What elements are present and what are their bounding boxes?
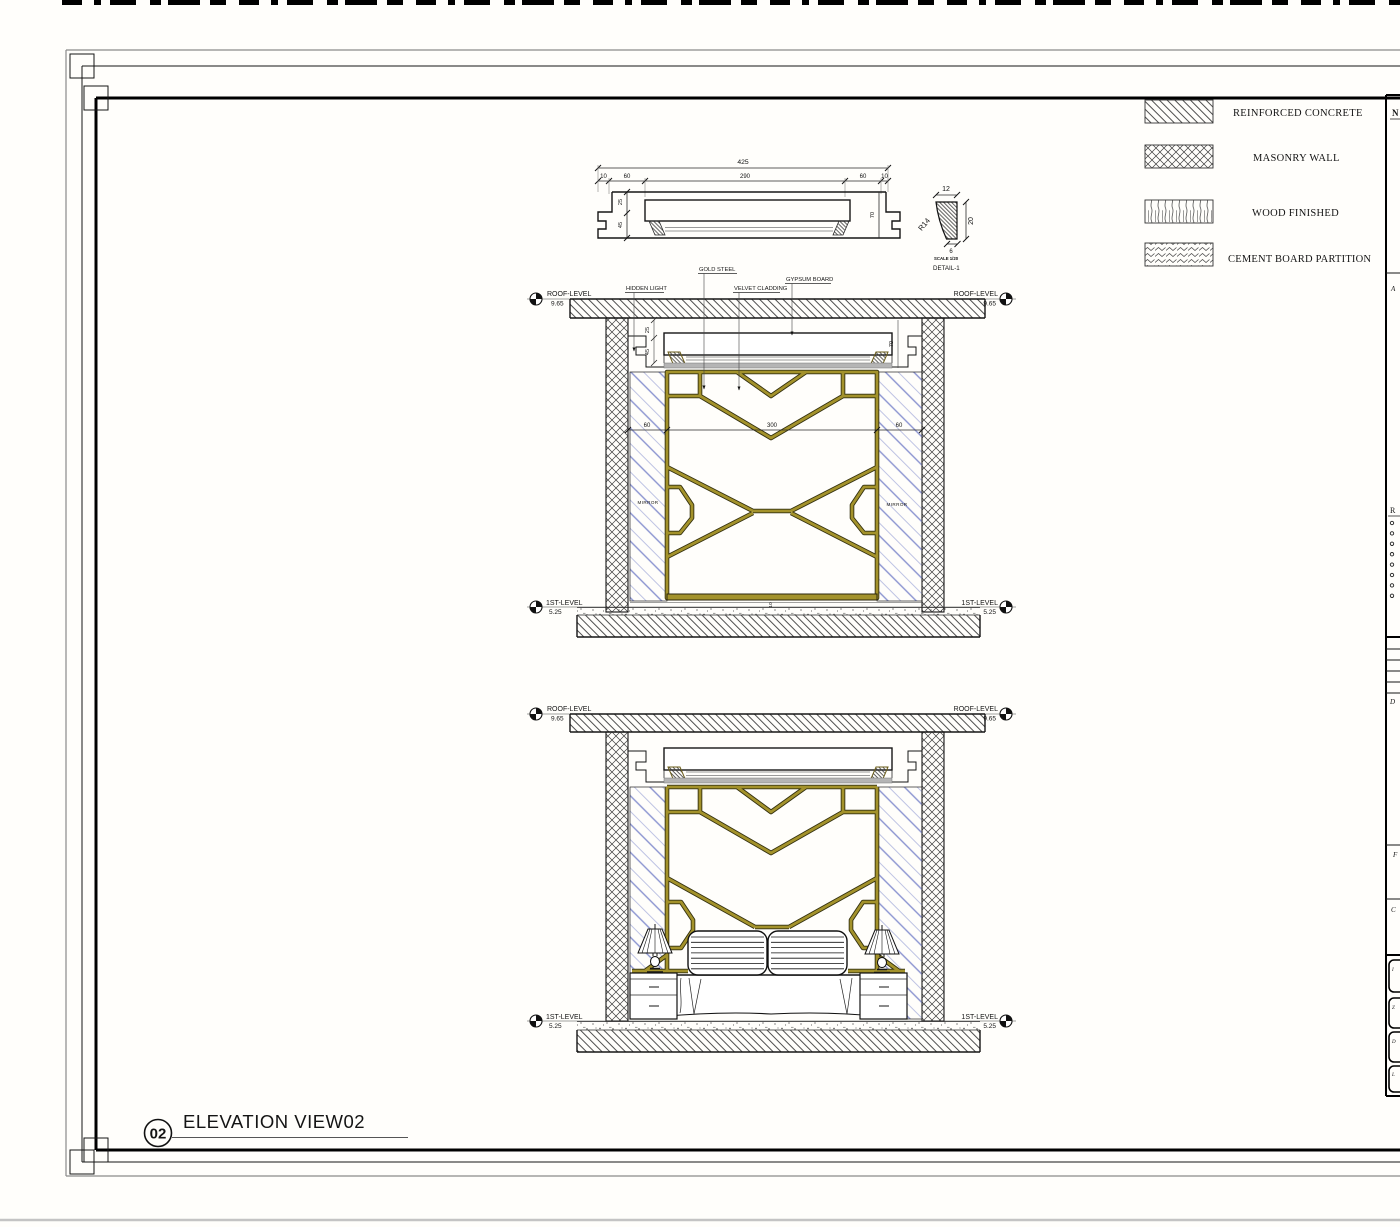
ceiling-cove bbox=[628, 748, 922, 783]
dim-right: 70 bbox=[870, 212, 876, 218]
view-title: 02 ELEVATION VIEW02 bbox=[145, 1111, 409, 1147]
level-value: 9.65 bbox=[551, 301, 564, 308]
level-value: 9.65 bbox=[983, 716, 996, 723]
legend-label: MASONRY WALL bbox=[1253, 153, 1340, 164]
floor-screed bbox=[577, 1022, 980, 1031]
cove-dim-lower: 45 bbox=[645, 349, 651, 355]
legend-label: REINFORCED CONCRETE bbox=[1233, 108, 1363, 119]
level-value: 9.65 bbox=[551, 716, 564, 723]
mirror-label-left: MIRROR bbox=[637, 500, 658, 505]
mirror-panel-left bbox=[630, 372, 667, 601]
elevation-2: ROOF-LEVEL 9.65 ROOF-LEVEL 9.65 1ST-LEVE… bbox=[527, 706, 1016, 1052]
cove-shadow-band bbox=[664, 778, 892, 783]
mirror-label-right: MIRROR bbox=[886, 502, 907, 507]
legend-label: WOOD FINISHED bbox=[1252, 208, 1339, 219]
dim-upper: 25 bbox=[618, 199, 624, 205]
floor-slab bbox=[577, 1030, 980, 1052]
level-label: 1ST-LEVEL bbox=[546, 600, 583, 607]
cove-shadow-band bbox=[664, 363, 892, 368]
legend-swatch-wood-finished bbox=[1145, 200, 1213, 223]
profile-radius: R14 bbox=[916, 216, 932, 232]
level-label: ROOF-LEVEL bbox=[547, 706, 591, 713]
level-value: 5.25 bbox=[549, 1023, 562, 1030]
level-value: 9.65 bbox=[983, 301, 996, 308]
legend-item-cement-board-partition: CEMENT BOARD PARTITION bbox=[1145, 243, 1371, 266]
legend-swatch-reinforced-concrete bbox=[1145, 100, 1213, 123]
dim-total: 425 bbox=[737, 159, 749, 166]
drawing-sheet: REINFORCED CONCRETE MASONRY WALL WOOD FI… bbox=[0, 0, 1400, 1227]
ceiling-cove: 25 45 70 bbox=[628, 317, 922, 368]
view-title-text: ELEVATION VIEW02 bbox=[183, 1111, 365, 1132]
level-label: 1ST-LEVEL bbox=[961, 1014, 998, 1021]
roof-slab bbox=[570, 714, 985, 732]
panel-box-label: L bbox=[1391, 1073, 1395, 1078]
panel-letter-d: D bbox=[1389, 698, 1395, 706]
level-label: ROOF-LEVEL bbox=[547, 291, 591, 298]
masonry-column-left bbox=[606, 732, 628, 1021]
profile-dim-top: 12 bbox=[942, 186, 950, 193]
profile-detail: 12 R14 20 6 SCALE 1/20 DETAIL-1 bbox=[916, 186, 975, 272]
profile-scale-note: SCALE 1/20 bbox=[934, 256, 959, 261]
gold-steel-clip bbox=[833, 221, 849, 235]
level-label: 1ST-LEVEL bbox=[961, 600, 998, 607]
profile-dim-side: 20 bbox=[968, 217, 975, 225]
gold-steel-clip bbox=[649, 221, 665, 235]
roof-slab bbox=[570, 299, 985, 318]
dim-lower: 45 bbox=[618, 222, 624, 228]
view-number: 02 bbox=[150, 1126, 167, 1143]
dim-seg: 60 bbox=[624, 174, 631, 180]
profile-dim-bottom: 6 bbox=[949, 249, 953, 255]
panel-box-label: I bbox=[1391, 968, 1394, 973]
dim-headboard: 300 bbox=[767, 423, 778, 429]
masonry-column-left bbox=[606, 318, 628, 612]
panel-bullets bbox=[1390, 521, 1393, 597]
legend-swatch-cement-board-partition bbox=[1145, 243, 1213, 266]
annotation-label: GOLD STEEL bbox=[699, 267, 736, 273]
legend-label: CEMENT BOARD PARTITION bbox=[1228, 254, 1371, 265]
floor-screed bbox=[577, 608, 980, 616]
panel-box-label: Z bbox=[1392, 1006, 1395, 1011]
panel-letter-n: N bbox=[1392, 108, 1399, 118]
level-value: 5.25 bbox=[983, 609, 996, 616]
annotation-label: VELVET CLADDING bbox=[734, 286, 788, 292]
drawing-canvas: REINFORCED CONCRETE MASONRY WALL WOOD FI… bbox=[0, 0, 1400, 1227]
floor-slab bbox=[577, 615, 980, 637]
panel-box-label: D bbox=[1391, 1040, 1396, 1045]
level-label: ROOF-LEVEL bbox=[954, 291, 998, 298]
legend-item-reinforced-concrete: REINFORCED CONCRETE bbox=[1145, 100, 1363, 123]
dim-seg: 10 bbox=[881, 174, 888, 180]
annotation-label: GYPSUM BOARD bbox=[786, 277, 833, 283]
cove-dim-right: 70 bbox=[889, 341, 895, 347]
gypsum-board bbox=[664, 333, 892, 355]
headboard-pattern bbox=[667, 372, 877, 600]
level-value: 5.25 bbox=[983, 1023, 996, 1030]
level-marker-first-left: 1ST-LEVEL 5.25 bbox=[530, 1014, 583, 1030]
panel-letter-a: A bbox=[1390, 285, 1396, 293]
nightstand-right bbox=[860, 973, 907, 1019]
bed-sheet bbox=[657, 975, 884, 1017]
title-block-strip: N A R D F C I Z D L bbox=[1386, 95, 1400, 1096]
profile-shape bbox=[936, 202, 957, 239]
annotation-label: HIDDEN LIGHT bbox=[626, 286, 667, 292]
elevation-1: 25 45 70 MIRROR MIRROR 60 300 60 HIDDEN … bbox=[527, 267, 1016, 637]
gypsum-board-profile bbox=[645, 200, 850, 221]
level-marker-first-left: 1ST-LEVEL 5.25 bbox=[530, 600, 583, 616]
panel-letter-f: F bbox=[1392, 851, 1398, 859]
masonry-column-right bbox=[922, 318, 944, 612]
masonry-column-right bbox=[922, 732, 944, 1021]
ceiling-section-detail: 425 10 60 290 60 10 25 45 70 bbox=[595, 159, 900, 241]
headboard-base-bar bbox=[667, 594, 877, 600]
cove-dim-upper: 25 bbox=[645, 327, 651, 333]
profile-title: DETAIL-1 bbox=[933, 265, 960, 272]
gypsum-board bbox=[664, 748, 892, 770]
level-value: 5.25 bbox=[549, 609, 562, 616]
legend-item-wood-finished: WOOD FINISHED bbox=[1145, 200, 1339, 223]
dim-seg: 10 bbox=[600, 174, 607, 180]
dim-seg: 60 bbox=[860, 174, 867, 180]
nightstand-left bbox=[630, 973, 677, 1019]
level-label: 1ST-LEVEL bbox=[546, 1014, 583, 1021]
pillow-left bbox=[688, 931, 767, 975]
legend-item-masonry-wall: MASONRY WALL bbox=[1145, 145, 1340, 168]
pillow-right bbox=[768, 931, 847, 975]
dim-mirror-right: 60 bbox=[896, 423, 903, 429]
panel-letter-c: C bbox=[1391, 906, 1396, 914]
dim-mirror-left: 60 bbox=[644, 423, 651, 429]
legend: REINFORCED CONCRETE MASONRY WALL WOOD FI… bbox=[1145, 100, 1371, 266]
level-label: ROOF-LEVEL bbox=[954, 706, 998, 713]
legend-swatch-masonry-wall bbox=[1145, 145, 1213, 168]
bed bbox=[657, 931, 884, 1017]
panel-letter-r: R bbox=[1390, 506, 1396, 515]
dim-seg: 290 bbox=[740, 174, 751, 180]
mirror-panel-right bbox=[877, 372, 922, 601]
